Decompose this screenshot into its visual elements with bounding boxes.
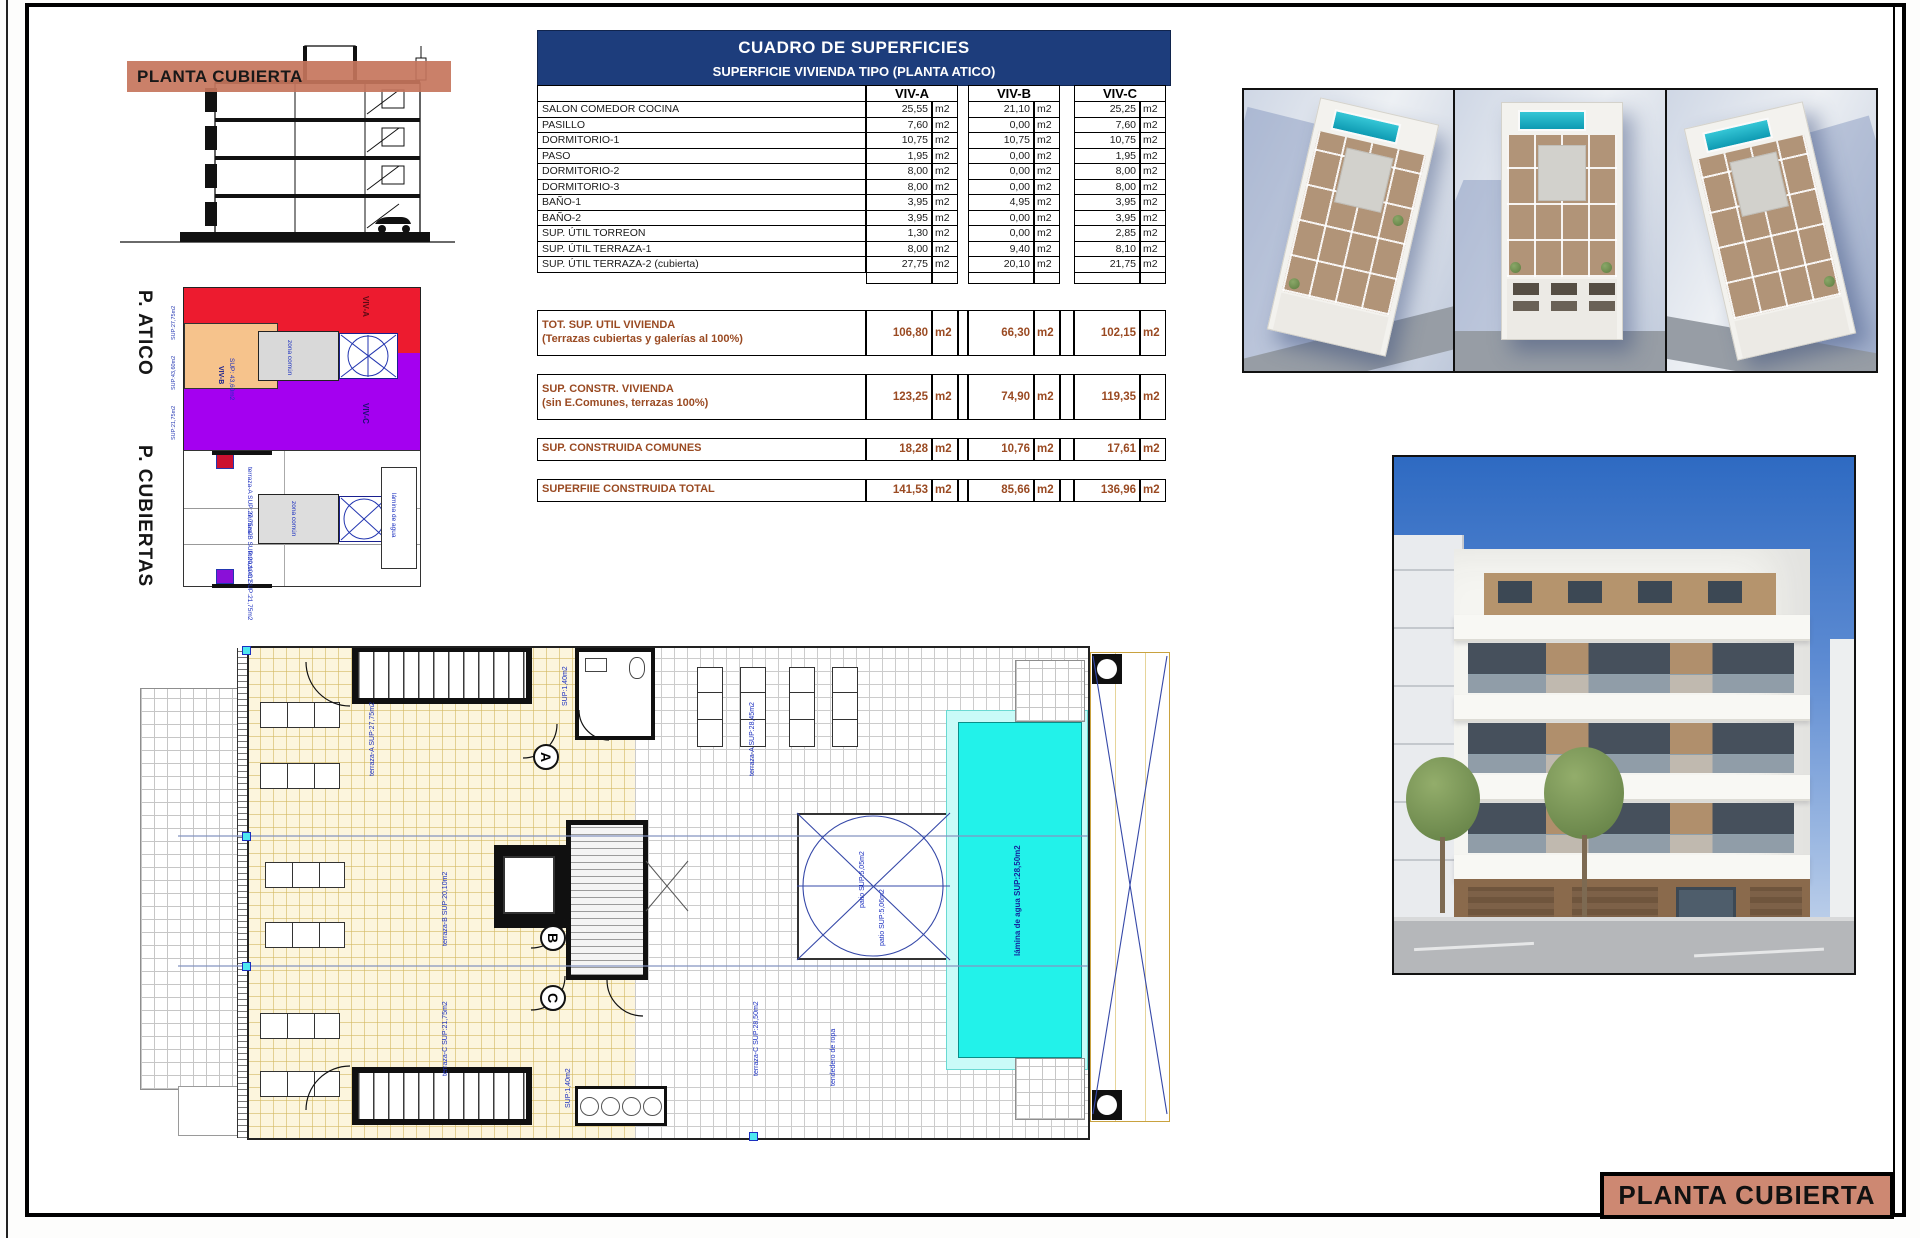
atico-side-label: SUP:21,75m2	[171, 406, 177, 440]
cell-unit: m2	[932, 148, 958, 165]
totals-value: 18,28	[866, 438, 932, 461]
cell-value: 0,00	[968, 148, 1034, 165]
label-patio-2: patio SUP:5,06m2	[879, 889, 886, 946]
cell-value: 21,75	[1074, 256, 1140, 273]
cell-value: 0,00	[968, 225, 1034, 242]
balcony-band	[1468, 723, 1794, 773]
totals-spacer	[537, 284, 1171, 310]
label-bath-a: SUP:1,40m2	[562, 666, 569, 706]
totals-unit: m2	[932, 479, 958, 502]
column-gap	[958, 163, 968, 180]
cell-value: 20,10	[968, 256, 1034, 273]
cell-unit: m2	[1140, 194, 1166, 211]
cell-unit: m2	[1140, 256, 1166, 273]
cell-unit: m2	[1140, 101, 1166, 118]
rooftop-pool	[1518, 110, 1586, 131]
column-gap	[1060, 438, 1074, 461]
cell-value: 10,75	[866, 132, 932, 149]
cell-unit: m2	[932, 194, 958, 211]
table-subtitle: SUPERFICIE VIVIENDA TIPO (PLANTA ATICO)	[538, 64, 1170, 79]
cell-unit: m2	[1034, 148, 1060, 165]
sheet-inner-border-line	[1893, 3, 1895, 1217]
atico-label-viv-b-sup: SUP: 43,60m2	[227, 358, 234, 400]
totals-spacer	[537, 356, 1171, 374]
row-label: DORMITORIO-3	[537, 179, 866, 196]
column-gap	[958, 256, 968, 273]
sheet-paper: PLANTA CUBIERTA P. ATICO SUP:27,75m2SUP:…	[0, 0, 1920, 1238]
column-header-empty	[537, 85, 866, 102]
survey-tick	[242, 646, 251, 655]
cell-unit: m2	[1034, 241, 1060, 258]
aerial-render-3	[1667, 90, 1876, 371]
cell-unit: m2	[1140, 225, 1166, 242]
floor-slab	[1454, 695, 1810, 721]
cell-value: 8,10	[1074, 241, 1140, 258]
cell-value: 9,40	[968, 241, 1034, 258]
ground-floor-commercial	[1454, 879, 1810, 921]
cell-value: 8,00	[866, 179, 932, 196]
door-label-a: A	[533, 744, 559, 770]
rooftop-core-roof	[1538, 145, 1586, 201]
totals-value: 102,15	[1074, 310, 1140, 356]
atico-title: P. ATICO	[133, 290, 155, 376]
aerial-render-1	[1244, 90, 1455, 371]
survey-tick	[749, 1132, 758, 1141]
totals-unit: m2	[1140, 438, 1166, 461]
column-header-viv-a: VIV-A	[866, 85, 958, 102]
column-gap	[958, 117, 968, 134]
cell-unit: m2	[1140, 117, 1166, 134]
table-totals: TOT. SUP. UTIL VIVIENDA(Terrazas cubiert…	[537, 284, 1171, 502]
totals-value: 17,61	[1074, 438, 1140, 461]
column-gap	[1060, 85, 1074, 102]
cell-value: 25,55	[866, 101, 932, 118]
street	[1394, 917, 1854, 973]
totals-unit: m2	[932, 438, 958, 461]
survey-tick	[242, 832, 251, 841]
cell-unit: m2	[1034, 179, 1060, 196]
atico-elevator-cross	[340, 334, 397, 378]
cell-unit: m2	[1034, 256, 1060, 273]
glass-railing	[1468, 674, 1794, 693]
cell-unit: m2	[1034, 225, 1060, 242]
terrace-window	[1568, 581, 1602, 603]
row-label: SUP. ÚTIL TERRAZA-1	[537, 241, 866, 258]
totals-label: SUP. CONSTRUIDA COMUNES	[537, 438, 866, 461]
table-empty-continuation-row	[537, 272, 1171, 284]
table-row: SUP. ÚTIL TERRAZA-18,00m29,40m28,10m2	[537, 241, 1171, 258]
totals-label: SUP. CONSTR. VIVIENDA(sin E.Comunes, ter…	[537, 374, 866, 420]
balcony-slot	[1551, 301, 1577, 311]
cell-unit: m2	[932, 241, 958, 258]
door-label-c: C	[540, 985, 566, 1011]
totals-label: SUPERFIIE CONSTRUIDA TOTAL	[537, 479, 866, 502]
cubiertas-wall-top	[212, 451, 272, 455]
row-label: BAÑO-1	[537, 194, 866, 211]
column-gap	[958, 194, 968, 211]
totals-row: SUP. CONSTRUIDA COMUNES18,28m210,76m217,…	[537, 438, 1171, 461]
column-gap	[958, 225, 968, 242]
column-gap	[958, 101, 968, 118]
totals-value: 106,80	[866, 310, 932, 356]
column-gap	[1060, 101, 1074, 118]
cell-value: 1,95	[866, 148, 932, 165]
table-row: DORMITORIO-28,00m20,00m28,00m2	[537, 163, 1171, 180]
cell-unit: m2	[1034, 194, 1060, 211]
column-gap	[1060, 241, 1074, 258]
cell-unit: m2	[1140, 163, 1166, 180]
cell-value: 10,75	[1074, 132, 1140, 149]
column-gap	[1060, 117, 1074, 134]
cubiertas-chip-purple	[216, 569, 234, 584]
floor-slab	[1454, 775, 1810, 801]
table-row: BAÑO-23,95m20,00m23,95m2	[537, 210, 1171, 227]
totals-row: SUP. CONSTR. VIVIENDA(sin E.Comunes, ter…	[537, 374, 1171, 420]
totals-unit: m2	[1140, 479, 1166, 502]
surfaces-table: CUADRO DE SUPERFICIES SUPERFICIE VIVIEND…	[537, 30, 1171, 502]
label-terraza-c: terraza-C SUP:21,75m2	[442, 1001, 449, 1076]
building-section-drawing: PLANTA CUBIERTA	[120, 28, 455, 260]
cell-value: 3,95	[866, 210, 932, 227]
cell-value: 0,00	[968, 117, 1034, 134]
cell-unit: m2	[932, 163, 958, 180]
column-gap	[1060, 210, 1074, 227]
row-label: BAÑO-2	[537, 210, 866, 227]
totals-value: 119,35	[1074, 374, 1140, 420]
cubiertas-label-tc: terraza-C SUP:21,75m2	[245, 551, 252, 620]
column-gap	[958, 438, 968, 461]
section-band-label: PLANTA CUBIERTA	[137, 67, 303, 87]
cell-value: 7,60	[1074, 117, 1140, 134]
cell-unit: m2	[932, 132, 958, 149]
totals-unit: m2	[1034, 310, 1060, 356]
table-row: DORMITORIO-38,00m20,00m28,00m2	[537, 179, 1171, 196]
cell-unit: m2	[932, 256, 958, 273]
column-gap	[1060, 179, 1074, 196]
rooftop-terrace-band	[1484, 573, 1776, 615]
cell-unit: m2	[1140, 210, 1166, 227]
cell-value: 4,95	[968, 194, 1034, 211]
column-gap	[958, 132, 968, 149]
label-terraza-a: terraza-A SUP:27,75m2	[369, 702, 376, 776]
sheet-outer-border-line	[6, 0, 8, 1238]
cell-unit: m2	[1034, 132, 1060, 149]
totals-unit: m2	[1140, 310, 1166, 356]
label-tendedero: tendedero de ropa	[830, 1029, 837, 1086]
row-label: SUP. ÚTIL TERRAZA-2 (cubierta)	[537, 256, 866, 273]
column-gap	[958, 241, 968, 258]
cubiertas-pool	[381, 467, 417, 569]
totals-spacer	[537, 461, 1171, 479]
atico-plan-rect: VIV-A VIV-B SUP: 43,60m2 VIV-C zona comú…	[183, 287, 421, 455]
cell-unit: m2	[1034, 163, 1060, 180]
cell-unit: m2	[1140, 148, 1166, 165]
column-gap	[1060, 194, 1074, 211]
aerial-renders-strip	[1242, 88, 1878, 373]
atico-elevator-shaft	[339, 333, 398, 379]
totals-spacer	[537, 420, 1171, 438]
totals-row: TOT. SUP. UTIL VIVIENDA(Terrazas cubiert…	[537, 310, 1171, 356]
label-bath-c: SUP:1,40m2	[565, 1068, 572, 1108]
column-gap	[1060, 132, 1074, 149]
building-facade-strip	[1507, 279, 1617, 339]
cell-value: 8,00	[1074, 163, 1140, 180]
facade-render	[1392, 455, 1856, 975]
cell-unit: m2	[1140, 179, 1166, 196]
table-row: SUP. ÚTIL TERRAZA-2 (cubierta)27,75m220,…	[537, 256, 1171, 273]
totals-value: 136,96	[1074, 479, 1140, 502]
cubiertas-wall-bottom	[212, 584, 272, 588]
balcony-slot	[1551, 283, 1577, 295]
cell-value: 3,95	[1074, 194, 1140, 211]
atico-label-zona: zona común	[285, 340, 292, 375]
atico-zone-comun	[258, 331, 339, 381]
table-row: PASILLO7,60m20,00m27,60m2	[537, 117, 1171, 134]
row-label: SUP. ÚTIL TORREON	[537, 225, 866, 242]
atico-key-plan: P. ATICO SUP:27,75m2SUP:43,60m2SUP:21,75…	[125, 282, 437, 460]
column-gap	[1060, 225, 1074, 242]
label-pool: lámina de agua SUP:28,50m2	[1013, 845, 1022, 956]
cell-unit: m2	[1034, 117, 1060, 134]
row-label: SALON COMEDOR COCINA	[537, 101, 866, 118]
balcony-band	[1468, 803, 1794, 853]
cell-value: 8,00	[1074, 179, 1140, 196]
balcony-slot	[1589, 301, 1615, 311]
table-column-header-row: VIV-A VIV-B VIV-C	[537, 85, 1171, 102]
door-label-b: B	[540, 925, 566, 951]
cubiertas-plan-rect: terraza-A SUP:27,75m2 terraza-B SUP:20,1…	[183, 450, 421, 587]
table-row: SALON COMEDOR COCINA25,55m221,10m225,25m…	[537, 101, 1171, 118]
balcony-slot	[1513, 301, 1539, 311]
terrace-window	[1498, 581, 1532, 603]
row-label: DORMITORIO-2	[537, 163, 866, 180]
row-label: PASILLO	[537, 117, 866, 134]
column-gap	[958, 148, 968, 165]
cubiertas-label-pool: lámina de agua	[389, 493, 396, 537]
atico-label-viv-b: VIV-B	[217, 366, 224, 384]
column-gap	[1060, 374, 1074, 420]
cell-value: 8,00	[866, 241, 932, 258]
column-gap	[958, 310, 968, 356]
column-gap	[1060, 148, 1074, 165]
cell-value: 27,75	[866, 256, 932, 273]
cell-unit: m2	[932, 179, 958, 196]
column-header-viv-b: VIV-B	[968, 85, 1060, 102]
row-label: DORMITORIO-1	[537, 132, 866, 149]
cell-unit: m2	[932, 225, 958, 242]
totals-value: 10,76	[968, 438, 1034, 461]
totals-value: 141,53	[866, 479, 932, 502]
cell-unit: m2	[932, 117, 958, 134]
cell-unit: m2	[1034, 210, 1060, 227]
column-gap	[958, 479, 968, 502]
table-title: CUADRO DE SUPERFICIES	[538, 38, 1170, 58]
column-gap	[1060, 310, 1074, 356]
balcony-band	[1468, 643, 1794, 693]
cell-value: 0,00	[968, 163, 1034, 180]
cell-value: 1,30	[866, 225, 932, 242]
column-gap	[1060, 479, 1074, 502]
column-gap	[958, 85, 968, 102]
column-gap	[958, 374, 968, 420]
cell-unit: m2	[932, 210, 958, 227]
totals-unit: m2	[932, 310, 958, 356]
cell-value: 3,95	[866, 194, 932, 211]
table-row: PASO1,95m20,00m21,95m2	[537, 148, 1171, 165]
cell-value: 1,95	[1074, 148, 1140, 165]
column-header-viv-c: VIV-C	[1074, 85, 1166, 102]
column-gap	[958, 210, 968, 227]
table-header: CUADRO DE SUPERFICIES SUPERFICIE VIVIEND…	[537, 30, 1171, 86]
cell-value: 10,75	[968, 132, 1034, 149]
planta-cubierta-highlight-band: PLANTA CUBIERTA	[127, 61, 451, 92]
cell-value: 7,60	[866, 117, 932, 134]
label-patio-1: patio SUP:5,05m2	[859, 851, 866, 908]
floor-slab	[1454, 855, 1810, 881]
balcony-slot	[1513, 283, 1539, 295]
label-deck-a: terraza-A SUP:28,45m2	[749, 702, 756, 776]
cell-unit: m2	[1034, 101, 1060, 118]
roof-floor-plan: A B C terraza-A SUP:27,75m2 terraza-B SU…	[137, 646, 1172, 1146]
totals-value: 74,90	[968, 374, 1034, 420]
totals-unit: m2	[1034, 479, 1060, 502]
atico-label-viv-a: VIV-A	[361, 296, 369, 317]
label-terraza-b: terraza-B SUP:20,10m2	[442, 872, 449, 946]
table-row: SUP. ÚTIL TORREON1,30m20,00m22,85m2	[537, 225, 1171, 242]
cell-value: 0,00	[968, 179, 1034, 196]
cell-unit: m2	[1140, 241, 1166, 258]
cell-value: 3,95	[1074, 210, 1140, 227]
cell-unit: m2	[1140, 132, 1166, 149]
column-gap	[1060, 256, 1074, 273]
atico-label-viv-c: VIV-C	[361, 403, 369, 424]
terrace-window	[1638, 581, 1672, 603]
cell-value: 21,10	[968, 101, 1034, 118]
road-marking	[1694, 948, 1824, 958]
totals-row: SUPERFIIE CONSTRUIDA TOTAL141,53m285,66m…	[537, 479, 1171, 502]
terrace-window	[1708, 581, 1742, 603]
floor-slab	[1454, 615, 1810, 641]
totals-value: 85,66	[968, 479, 1034, 502]
glass-railing	[1468, 834, 1794, 853]
aerial-render-2	[1455, 90, 1666, 371]
cubiertas-zona-comun	[258, 494, 339, 544]
glass-railing	[1468, 754, 1794, 773]
table-row: DORMITORIO-110,75m210,75m210,75m2	[537, 132, 1171, 149]
cell-value: 25,25	[1074, 101, 1140, 118]
cubiertas-label-zona: zona común	[289, 501, 296, 536]
cubiertas-title: P. CUBIERTAS	[133, 445, 155, 587]
totals-unit: m2	[932, 374, 958, 420]
column-gap	[958, 179, 968, 196]
cell-value: 0,00	[968, 210, 1034, 227]
cell-value: 8,00	[866, 163, 932, 180]
row-label: PASO	[537, 148, 866, 165]
totals-value: 66,30	[968, 310, 1034, 356]
main-building	[1454, 549, 1810, 921]
atico-side-label: SUP:27,75m2	[171, 306, 177, 340]
sheet-title: PLANTA CUBIERTA	[1618, 1180, 1875, 1211]
table-body: SALON COMEDOR COCINA25,55m221,10m225,25m…	[537, 101, 1171, 273]
totals-label: TOT. SUP. UTIL VIVIENDA(Terrazas cubiert…	[537, 310, 866, 356]
label-deck-c: terraza-C SUP:28,50m2	[753, 1001, 760, 1076]
totals-unit: m2	[1034, 438, 1060, 461]
table-row: BAÑO-13,95m24,95m23,95m2	[537, 194, 1171, 211]
sheet-title-block: PLANTA CUBIERTA	[1600, 1172, 1894, 1219]
totals-unit: m2	[1140, 374, 1166, 420]
totals-value: 123,25	[866, 374, 932, 420]
cell-unit: m2	[932, 101, 958, 118]
atico-side-label: SUP:43,60m2	[171, 356, 177, 390]
cubiertas-key-plan: P. CUBIERTAS terraza-A SUP:27,75m2 terra	[125, 443, 437, 593]
totals-unit: m2	[1034, 374, 1060, 420]
balcony-slot	[1589, 283, 1615, 295]
building-roof-render	[1501, 102, 1623, 340]
cubiertas-chip-red	[216, 454, 234, 469]
column-gap	[1060, 163, 1074, 180]
atico-dimension-labels: SUP:27,75m2SUP:43,60m2SUP:21,75m2	[169, 292, 181, 442]
survey-tick	[242, 962, 251, 971]
cell-value: 2,85	[1074, 225, 1140, 242]
road-marking	[1414, 942, 1534, 951]
